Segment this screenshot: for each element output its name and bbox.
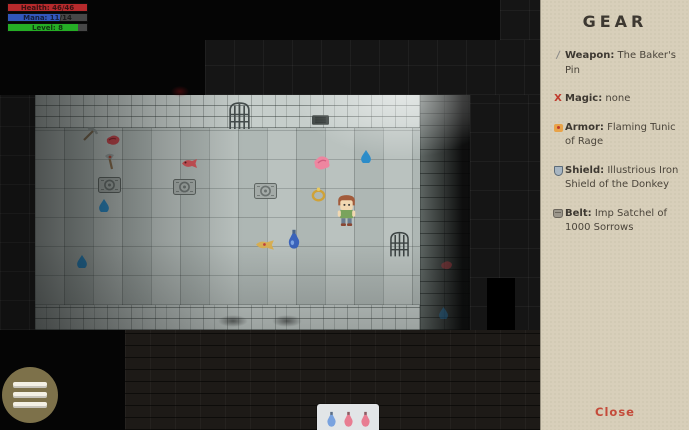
- portcullis-gate-icon[interactable]: [229, 102, 250, 129]
- game-screen: Health: 46/46 Mana: 11/14 Level: 8 GEAR: [0, 0, 689, 430]
- gear-item-text: Belt: Imp Satchel of 1000 Sorrows: [565, 207, 679, 236]
- red-x-icon: X: [551, 93, 565, 105]
- dark-tiles-top-corner: [500, 0, 540, 40]
- water-drop-icon[interactable]: [361, 150, 371, 163]
- health-bar-label: Health: 46/46: [8, 4, 87, 12]
- red-item-icon: [439, 260, 454, 271]
- quickslot-tray[interactable]: [317, 404, 379, 430]
- dark-doorway: [487, 278, 515, 330]
- grate-plate-icon[interactable]: [98, 177, 121, 193]
- gear-item-weapon[interactable]: / Weapon: The Baker's Pin: [551, 49, 679, 78]
- iron-shield-icon: [554, 166, 563, 176]
- tunic-icon: [554, 124, 563, 132]
- mana-bar-label: Mana: 11/14: [8, 14, 87, 22]
- health-bar: Health: 46/46: [7, 3, 88, 12]
- level-bar: Level: 8: [7, 23, 88, 32]
- axe-icon[interactable]: [103, 152, 119, 170]
- stats-hud: Health: 46/46 Mana: 11/14 Level: 8: [7, 3, 88, 33]
- red-fish-icon[interactable]: [180, 158, 199, 169]
- water-drop-icon: [439, 307, 448, 319]
- satchel-icon: [553, 209, 563, 218]
- dark-tiles-left: [0, 95, 35, 330]
- level-bar-label: Level: 8: [8, 24, 87, 32]
- cooked-fish-icon[interactable]: [255, 239, 276, 251]
- wall-vent-icon: [312, 115, 329, 125]
- water-drop-icon[interactable]: [99, 199, 109, 212]
- dungeon-wall-right: [420, 95, 470, 330]
- portcullis-gate-icon[interactable]: [390, 231, 409, 257]
- pink-meat-icon[interactable]: [312, 155, 332, 171]
- pink-potion-icon[interactable]: [343, 411, 354, 428]
- close-button[interactable]: Close: [541, 404, 689, 420]
- menu-button[interactable]: [2, 367, 58, 423]
- gear-panel-title: GEAR: [541, 12, 689, 31]
- pickaxe-icon[interactable]: [81, 126, 98, 143]
- gear-list: / Weapon: The Baker's Pin X Magic: none …: [541, 41, 689, 236]
- gear-item-shield[interactable]: Shield: Illustrious Iron Shield of the D…: [551, 164, 679, 193]
- water-drop-icon[interactable]: [77, 255, 87, 268]
- mana-bar: Mana: 11/14: [7, 13, 88, 22]
- gear-panel: GEAR / Weapon: The Baker's Pin X Magic: …: [540, 0, 689, 430]
- gear-item-text: Magic: none: [565, 92, 630, 107]
- hamburger-menu-icon: [13, 382, 47, 408]
- gear-item-text: Shield: Illustrious Iron Shield of the D…: [565, 164, 679, 193]
- grate-plate-icon[interactable]: [173, 179, 196, 195]
- pink-potion-icon[interactable]: [360, 411, 371, 428]
- gear-item-magic[interactable]: X Magic: none: [551, 92, 679, 107]
- floor-shadow: [272, 315, 302, 327]
- blue-potion-icon[interactable]: [287, 229, 301, 250]
- grate-plate-icon[interactable]: [254, 183, 277, 199]
- dungeon-wall-top: [35, 95, 420, 128]
- dark-tiles-top: [205, 40, 540, 95]
- gear-item-text: Weapon: The Baker's Pin: [565, 49, 679, 78]
- blue-potion-icon[interactable]: [326, 411, 337, 428]
- floor-shadow: [218, 315, 248, 327]
- gear-item-armor[interactable]: Armor: Flaming Tunic of Rage: [551, 121, 679, 150]
- gold-ring-icon[interactable]: [310, 187, 327, 202]
- gear-item-text: Armor: Flaming Tunic of Rage: [565, 121, 679, 150]
- player-character[interactable]: [334, 193, 359, 226]
- blood-smudge: [171, 86, 189, 97]
- pin-weapon-icon: /: [550, 50, 566, 62]
- raw-meat-icon[interactable]: [105, 134, 121, 147]
- gear-item-belt[interactable]: Belt: Imp Satchel of 1000 Sorrows: [551, 207, 679, 236]
